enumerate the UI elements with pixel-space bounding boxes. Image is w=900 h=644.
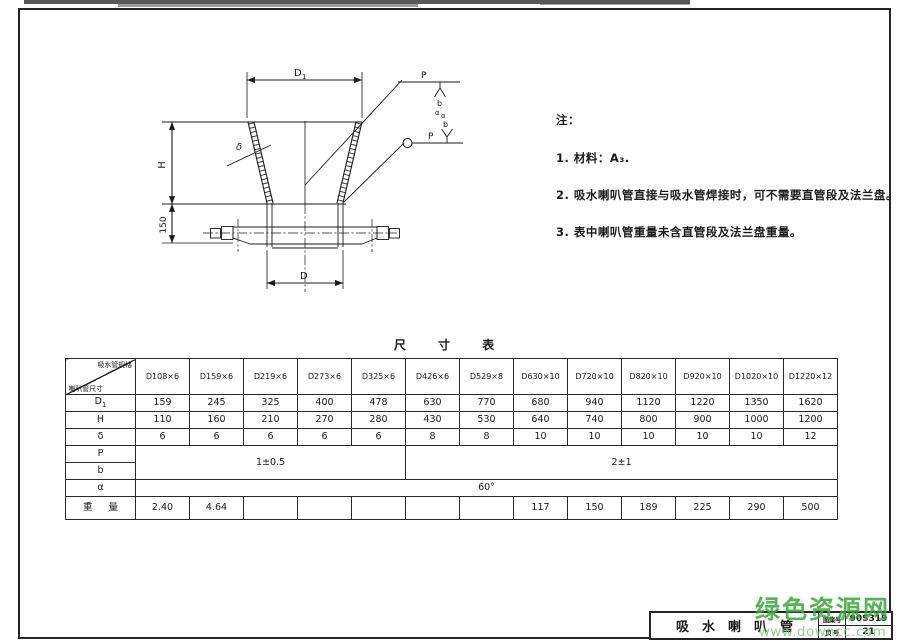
- col-header: D159×6: [190, 359, 244, 395]
- cell: 740: [568, 412, 622, 429]
- cell: [460, 497, 514, 520]
- cell: 10: [514, 429, 568, 446]
- row-label-p: P: [66, 446, 136, 463]
- weld1-p-label: P: [421, 71, 427, 81]
- delta-label: δ: [236, 142, 242, 153]
- weld1-leader: [305, 80, 402, 185]
- page-number: 21: [846, 627, 891, 637]
- cell: 680: [514, 395, 568, 412]
- weld2-b-label: b: [443, 120, 448, 129]
- cell: [244, 497, 298, 520]
- cell: 1620: [784, 395, 838, 412]
- cell: 117: [514, 497, 568, 520]
- cell: 1220: [676, 395, 730, 412]
- dimension-table-title: 尺 寸 表: [65, 336, 837, 353]
- table-row-delta: δ 6 6 6 6 6 8 8 10 10 10 10 10 12: [66, 429, 838, 446]
- cell: [352, 497, 406, 520]
- row-label-h: H: [66, 412, 136, 429]
- cell: 1120: [622, 395, 676, 412]
- corner-top-label: 吸水管规格: [97, 361, 132, 368]
- cone-wall-left: [248, 122, 273, 203]
- row-label-delta: δ: [66, 429, 136, 446]
- cell: 1000: [730, 412, 784, 429]
- cell-pb-left: 1±0.5: [136, 446, 406, 480]
- weld1-b-label: b: [437, 99, 442, 108]
- cell: 430: [406, 412, 460, 429]
- cell: 478: [352, 395, 406, 412]
- col-header: D529×8: [460, 359, 514, 395]
- h-dim-label: H: [157, 161, 168, 169]
- col-header: D1220×12: [784, 359, 838, 395]
- d-dim-label: D: [300, 271, 308, 282]
- weld1-groove-symbol: [435, 82, 446, 97]
- cell: 159: [136, 395, 190, 412]
- cell: 940: [568, 395, 622, 412]
- d1-dim-label-sub: 1: [302, 73, 306, 81]
- cell: [406, 497, 460, 520]
- notes-heading: 注：: [556, 112, 886, 128]
- cell: 12: [784, 429, 838, 446]
- cell: 900: [676, 412, 730, 429]
- table-row-alpha: α 60°: [66, 480, 838, 497]
- cell: 8: [460, 429, 514, 446]
- corner-bottom-label: 喇叭管尺寸: [69, 385, 104, 392]
- weld2-circle: [403, 139, 412, 148]
- cell: 1200: [784, 412, 838, 429]
- cell: 10: [622, 429, 676, 446]
- col-header: D325×6: [352, 359, 406, 395]
- cell: 280: [352, 412, 406, 429]
- row-label-weight: 重量: [66, 497, 136, 520]
- col-header: D920×10: [676, 359, 730, 395]
- cell: 325: [244, 395, 298, 412]
- cell: 640: [514, 412, 568, 429]
- bell-mouth-drawing: D 1 H 150 D δ P b α P b α: [0, 0, 900, 644]
- col-header: D273×6: [298, 359, 352, 395]
- table-row-weight: 重量 2.40 4.64 117 150 189 225 290 500: [66, 497, 838, 520]
- cell: 6: [136, 429, 190, 446]
- dim150-label: 150: [159, 216, 169, 233]
- cell: 270: [298, 412, 352, 429]
- col-header: D426×6: [406, 359, 460, 395]
- delta-leader: [227, 145, 271, 166]
- table-corner-cell: 吸水管规格 喇叭管尺寸: [66, 359, 136, 395]
- cell: 6: [190, 429, 244, 446]
- title-block: 吸水喇叭管 图集号 90S319 页 号 21: [649, 611, 893, 640]
- cell: 2.40: [136, 497, 190, 520]
- cell-pb-right: 2±1: [406, 446, 838, 480]
- cell: 6: [244, 429, 298, 446]
- dimension-table-section: 尺 寸 表 吸水管规格 喇叭管尺寸 D108×6 D159×6 D219×6 D…: [65, 336, 837, 520]
- cell: 290: [730, 497, 784, 520]
- note-item-3: 3. 表中喇叭管重量未含直管段及法兰盘重量。: [556, 224, 886, 240]
- notes-block: 注： 1. 材料：A₃. 2. 吸水喇叭管直接与吸水管焊接时，可不需要直管段及法…: [556, 112, 886, 261]
- cone-wall-right: [337, 122, 362, 203]
- cone-wall-left-hatch: [251, 123, 270, 202]
- note-item-2: 2. 吸水喇叭管直接与吸水管焊接时，可不需要直管段及法兰盘。: [556, 187, 886, 203]
- weld2-groove-symbol: [442, 129, 453, 143]
- cell: 10: [568, 429, 622, 446]
- cell: 110: [136, 412, 190, 429]
- cell: 210: [244, 412, 298, 429]
- table-header-row: 吸水管规格 喇叭管尺寸 D108×6 D159×6 D219×6 D273×6 …: [66, 359, 838, 395]
- cell: 6: [352, 429, 406, 446]
- cell: 6: [298, 429, 352, 446]
- cell: 10: [730, 429, 784, 446]
- row-label-d1: D1: [66, 395, 136, 412]
- cell: [298, 497, 352, 520]
- cell: 189: [622, 497, 676, 520]
- row-label-b: b: [66, 463, 136, 480]
- cell: 225: [676, 497, 730, 520]
- d1-dim-label: D: [294, 68, 302, 79]
- cell: 160: [190, 412, 244, 429]
- drawing-title: 吸水喇叭管: [651, 613, 819, 638]
- cell: 150: [568, 497, 622, 520]
- cell: 530: [460, 412, 514, 429]
- cell: 400: [298, 395, 352, 412]
- weld2-p-label: P: [428, 132, 434, 142]
- cell: 4.64: [190, 497, 244, 520]
- cell: 245: [190, 395, 244, 412]
- row-label-alpha: α: [66, 480, 136, 497]
- table-row-d1: D1 159 245 325 400 478 630 770 680 940 1…: [66, 395, 838, 412]
- page-row: 页 号 21: [819, 625, 891, 638]
- note-item-1: 1. 材料：A₃.: [556, 150, 886, 166]
- cell: 10: [676, 429, 730, 446]
- table-row-p: P 1±0.5 2±1: [66, 446, 838, 463]
- dimension-table: 吸水管规格 喇叭管尺寸 D108×6 D159×6 D219×6 D273×6 …: [65, 358, 838, 520]
- title-block-right: 图集号 90S319 页 号 21: [819, 613, 891, 638]
- atlas-number: 90S319: [846, 614, 891, 624]
- cell: 800: [622, 412, 676, 429]
- atlas-row: 图集号 90S319: [819, 613, 891, 625]
- weld1-alpha-label: α: [435, 109, 440, 117]
- weld2-leader: [344, 143, 404, 202]
- col-header: D820×10: [622, 359, 676, 395]
- atlas-label: 图集号: [819, 613, 846, 625]
- cell-alpha: 60°: [136, 480, 838, 497]
- col-header: D630×10: [514, 359, 568, 395]
- weld2-alpha-label: α: [441, 112, 446, 120]
- col-header: D720×10: [568, 359, 622, 395]
- table-row-h: H 110 160 210 270 280 430 530 640 740 80…: [66, 412, 838, 429]
- col-header: D1020×10: [730, 359, 784, 395]
- cell: 8: [406, 429, 460, 446]
- col-header: D219×6: [244, 359, 298, 395]
- col-header: D108×6: [136, 359, 190, 395]
- cell: 630: [406, 395, 460, 412]
- cell: 500: [784, 497, 838, 520]
- page-label: 页 号: [819, 626, 846, 638]
- cell: 770: [460, 395, 514, 412]
- cell: 1350: [730, 395, 784, 412]
